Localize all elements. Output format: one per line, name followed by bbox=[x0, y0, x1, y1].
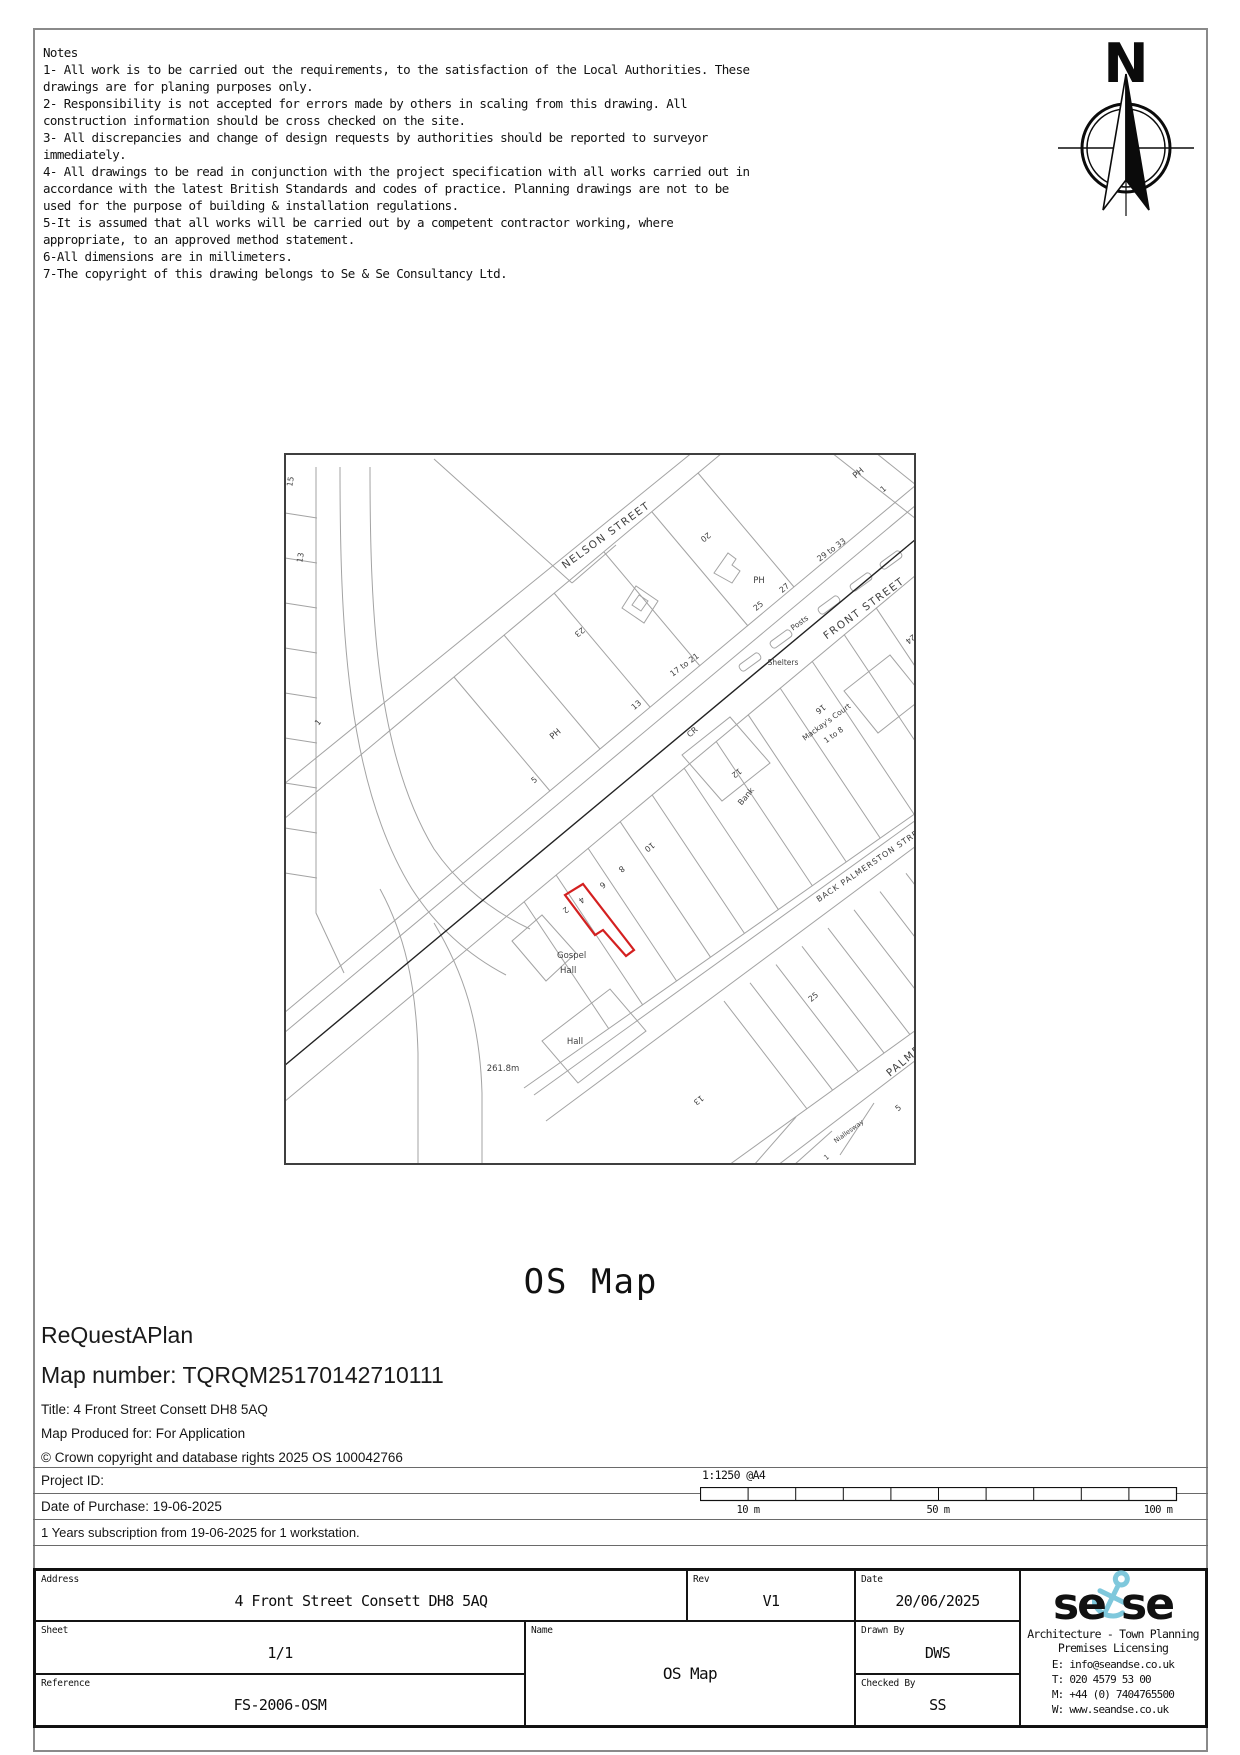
map-label: 27 bbox=[778, 581, 792, 594]
site-outline bbox=[565, 884, 634, 956]
notes-line: 6-All dimensions are in millimeters. bbox=[43, 248, 743, 265]
notes-title: Notes bbox=[43, 44, 743, 61]
sheet-cell: Sheet 1/1 bbox=[35, 1621, 525, 1674]
copyright-line: © Crown copyright and database rights 20… bbox=[41, 1450, 403, 1465]
project-id-line: Project ID: bbox=[41, 1473, 104, 1488]
notes-line: 1- All work is to be carried out the req… bbox=[43, 61, 743, 78]
company-logo: se se bbox=[1053, 1575, 1173, 1627]
reference-value: FS-2006-OSM bbox=[36, 1685, 524, 1725]
map-label: 25 bbox=[752, 599, 766, 612]
map-label: 15 bbox=[285, 476, 296, 488]
map-heading: OS Map bbox=[420, 1262, 762, 1302]
notes-line: 5-It is assumed that all works will be c… bbox=[43, 214, 743, 231]
notes-line: 2- Responsibility is not accepted for er… bbox=[43, 95, 743, 112]
address-cell: Address 4 Front Street Consett DH8 5AQ bbox=[35, 1570, 687, 1621]
boundary-line bbox=[284, 539, 916, 1066]
map-label: PH bbox=[548, 727, 563, 742]
map-label: 4 bbox=[577, 895, 587, 905]
separator bbox=[33, 1545, 1208, 1546]
notes-line: used for the purpose of building & insta… bbox=[43, 197, 743, 214]
logo-contact-line: T: 020 4579 53 00 bbox=[1052, 1672, 1174, 1687]
subscription-line: 1 Years subscription from 19-06-2025 for… bbox=[41, 1525, 360, 1540]
scale-label-100m: 100 m bbox=[1128, 1504, 1188, 1516]
notes-line: accordance with the latest British Stand… bbox=[43, 180, 743, 197]
sheet-value: 1/1 bbox=[36, 1632, 524, 1673]
reference-cell: Reference FS-2006-OSM bbox=[35, 1674, 525, 1726]
rev-value: V1 bbox=[688, 1581, 854, 1620]
notes-line: construction information should be cross… bbox=[43, 112, 743, 129]
notes-block: Notes 1- All work is to be carried out t… bbox=[43, 44, 743, 282]
notes-line: drawings are for planing purposes only. bbox=[43, 78, 743, 95]
map-label: Shelters bbox=[768, 658, 799, 667]
logo-contact-line: W: www.seandse.co.uk bbox=[1052, 1702, 1174, 1717]
checked-by-value: SS bbox=[856, 1685, 1019, 1725]
logo-cell: se se Architecture - Town Planning Premi… bbox=[1020, 1570, 1206, 1726]
notes-line: appropriate, to an approved method state… bbox=[43, 231, 743, 248]
rev-cell: Rev V1 bbox=[687, 1570, 855, 1621]
map-label: PALMERSTON STREET bbox=[884, 980, 916, 1079]
parcel-lines bbox=[285, 513, 916, 1109]
map-label: 1 bbox=[879, 484, 889, 494]
map-label: 1 bbox=[822, 1153, 831, 1162]
notes-line: 4- All drawings to be read in conjunctio… bbox=[43, 163, 743, 180]
title-block: Address 4 Front Street Consett DH8 5AQ R… bbox=[33, 1568, 1208, 1728]
drawn-by-value: DWS bbox=[856, 1632, 1019, 1673]
map-label: 10 bbox=[643, 840, 657, 853]
logo-contact-line: M: +44 (0) 7404765500 bbox=[1052, 1687, 1174, 1702]
notes-line: 3- All discrepancies and change of desig… bbox=[43, 129, 743, 146]
notes-lines: 1- All work is to be carried out the req… bbox=[43, 61, 743, 282]
scale-label-10m: 10 m bbox=[718, 1504, 778, 1516]
map-label: 6 bbox=[598, 880, 608, 890]
scale-label-50m: 50 m bbox=[908, 1504, 968, 1516]
purchase-date-line: Date of Purchase: 19-06-2025 bbox=[41, 1499, 222, 1514]
map-label: Hall bbox=[567, 1037, 583, 1047]
map-label: 261.8m bbox=[487, 1064, 520, 1074]
map-label: NELSON STREET bbox=[560, 500, 653, 572]
separator bbox=[33, 1519, 1208, 1520]
map-label: 8 bbox=[617, 864, 627, 874]
map-label: 13 bbox=[630, 698, 644, 711]
map-label: 20 bbox=[699, 530, 713, 543]
notes-line: 7-The copyright of this drawing belongs … bbox=[43, 265, 743, 282]
name-cell: Name OS Map bbox=[525, 1621, 855, 1726]
map-label: 25 bbox=[807, 990, 821, 1003]
os-map: 15131NELSON STREET2320PH129 to 33FRONT S… bbox=[284, 453, 916, 1165]
name-value: OS Map bbox=[526, 1622, 854, 1725]
drawn-by-cell: Drawn By DWS bbox=[855, 1621, 1020, 1674]
logo-contact-line: E: info@seandse.co.uk bbox=[1052, 1657, 1174, 1672]
map-label: 1 bbox=[313, 718, 323, 728]
map-label: 13 bbox=[295, 552, 306, 564]
scale-ratio: 1:1250 @A4 bbox=[702, 1468, 765, 1482]
logo-tagline-2: Premises Licensing bbox=[1058, 1641, 1168, 1655]
date-value: 20/06/2025 bbox=[856, 1581, 1019, 1620]
map-label: 13 bbox=[692, 1093, 706, 1106]
map-label: 2 bbox=[561, 905, 571, 915]
notes-line: immediately. bbox=[43, 146, 743, 163]
map-label: Hall bbox=[560, 966, 576, 976]
map-label: PH bbox=[753, 576, 765, 586]
north-arrow-icon: N bbox=[1056, 30, 1196, 220]
drawing-sheet: Notes 1- All work is to be carried out t… bbox=[0, 0, 1240, 1755]
map-label: BACK PALMERSTON STREET bbox=[815, 822, 916, 904]
map-title-line: Title: 4 Front Street Consett DH8 5AQ bbox=[41, 1402, 268, 1417]
checked-by-cell: Checked By SS bbox=[855, 1674, 1020, 1726]
map-label: 23 bbox=[573, 625, 587, 638]
map-label: Gospel bbox=[557, 951, 586, 961]
separator bbox=[33, 1467, 1208, 1468]
logo-word-left: se bbox=[1053, 1579, 1105, 1630]
logo-contact-lines: E: info@seandse.co.ukT: 020 4579 53 00M:… bbox=[1052, 1657, 1174, 1717]
date-cell: Date 20/06/2025 bbox=[855, 1570, 1020, 1621]
map-label: 16 bbox=[814, 702, 828, 715]
map-label: 17 to 21 bbox=[668, 651, 700, 678]
logo-word-right: se bbox=[1121, 1579, 1173, 1630]
map-label: CR bbox=[685, 725, 700, 739]
map-label: 29 to 33 bbox=[815, 536, 847, 563]
map-label: 12 bbox=[730, 766, 744, 779]
map-number: Map number: TQRQM25170142710111 bbox=[41, 1362, 444, 1389]
address-value: 4 Front Street Consett DH8 5AQ bbox=[36, 1581, 686, 1620]
map-labels: 15131NELSON STREET2320PH129 to 33FRONT S… bbox=[285, 466, 916, 1162]
map-label: 5 bbox=[894, 1103, 904, 1113]
scale-bar bbox=[700, 1487, 1178, 1502]
brand-title: ReQuestAPlan bbox=[41, 1322, 193, 1349]
produced-for-line: Map Produced for: For Application bbox=[41, 1426, 245, 1441]
